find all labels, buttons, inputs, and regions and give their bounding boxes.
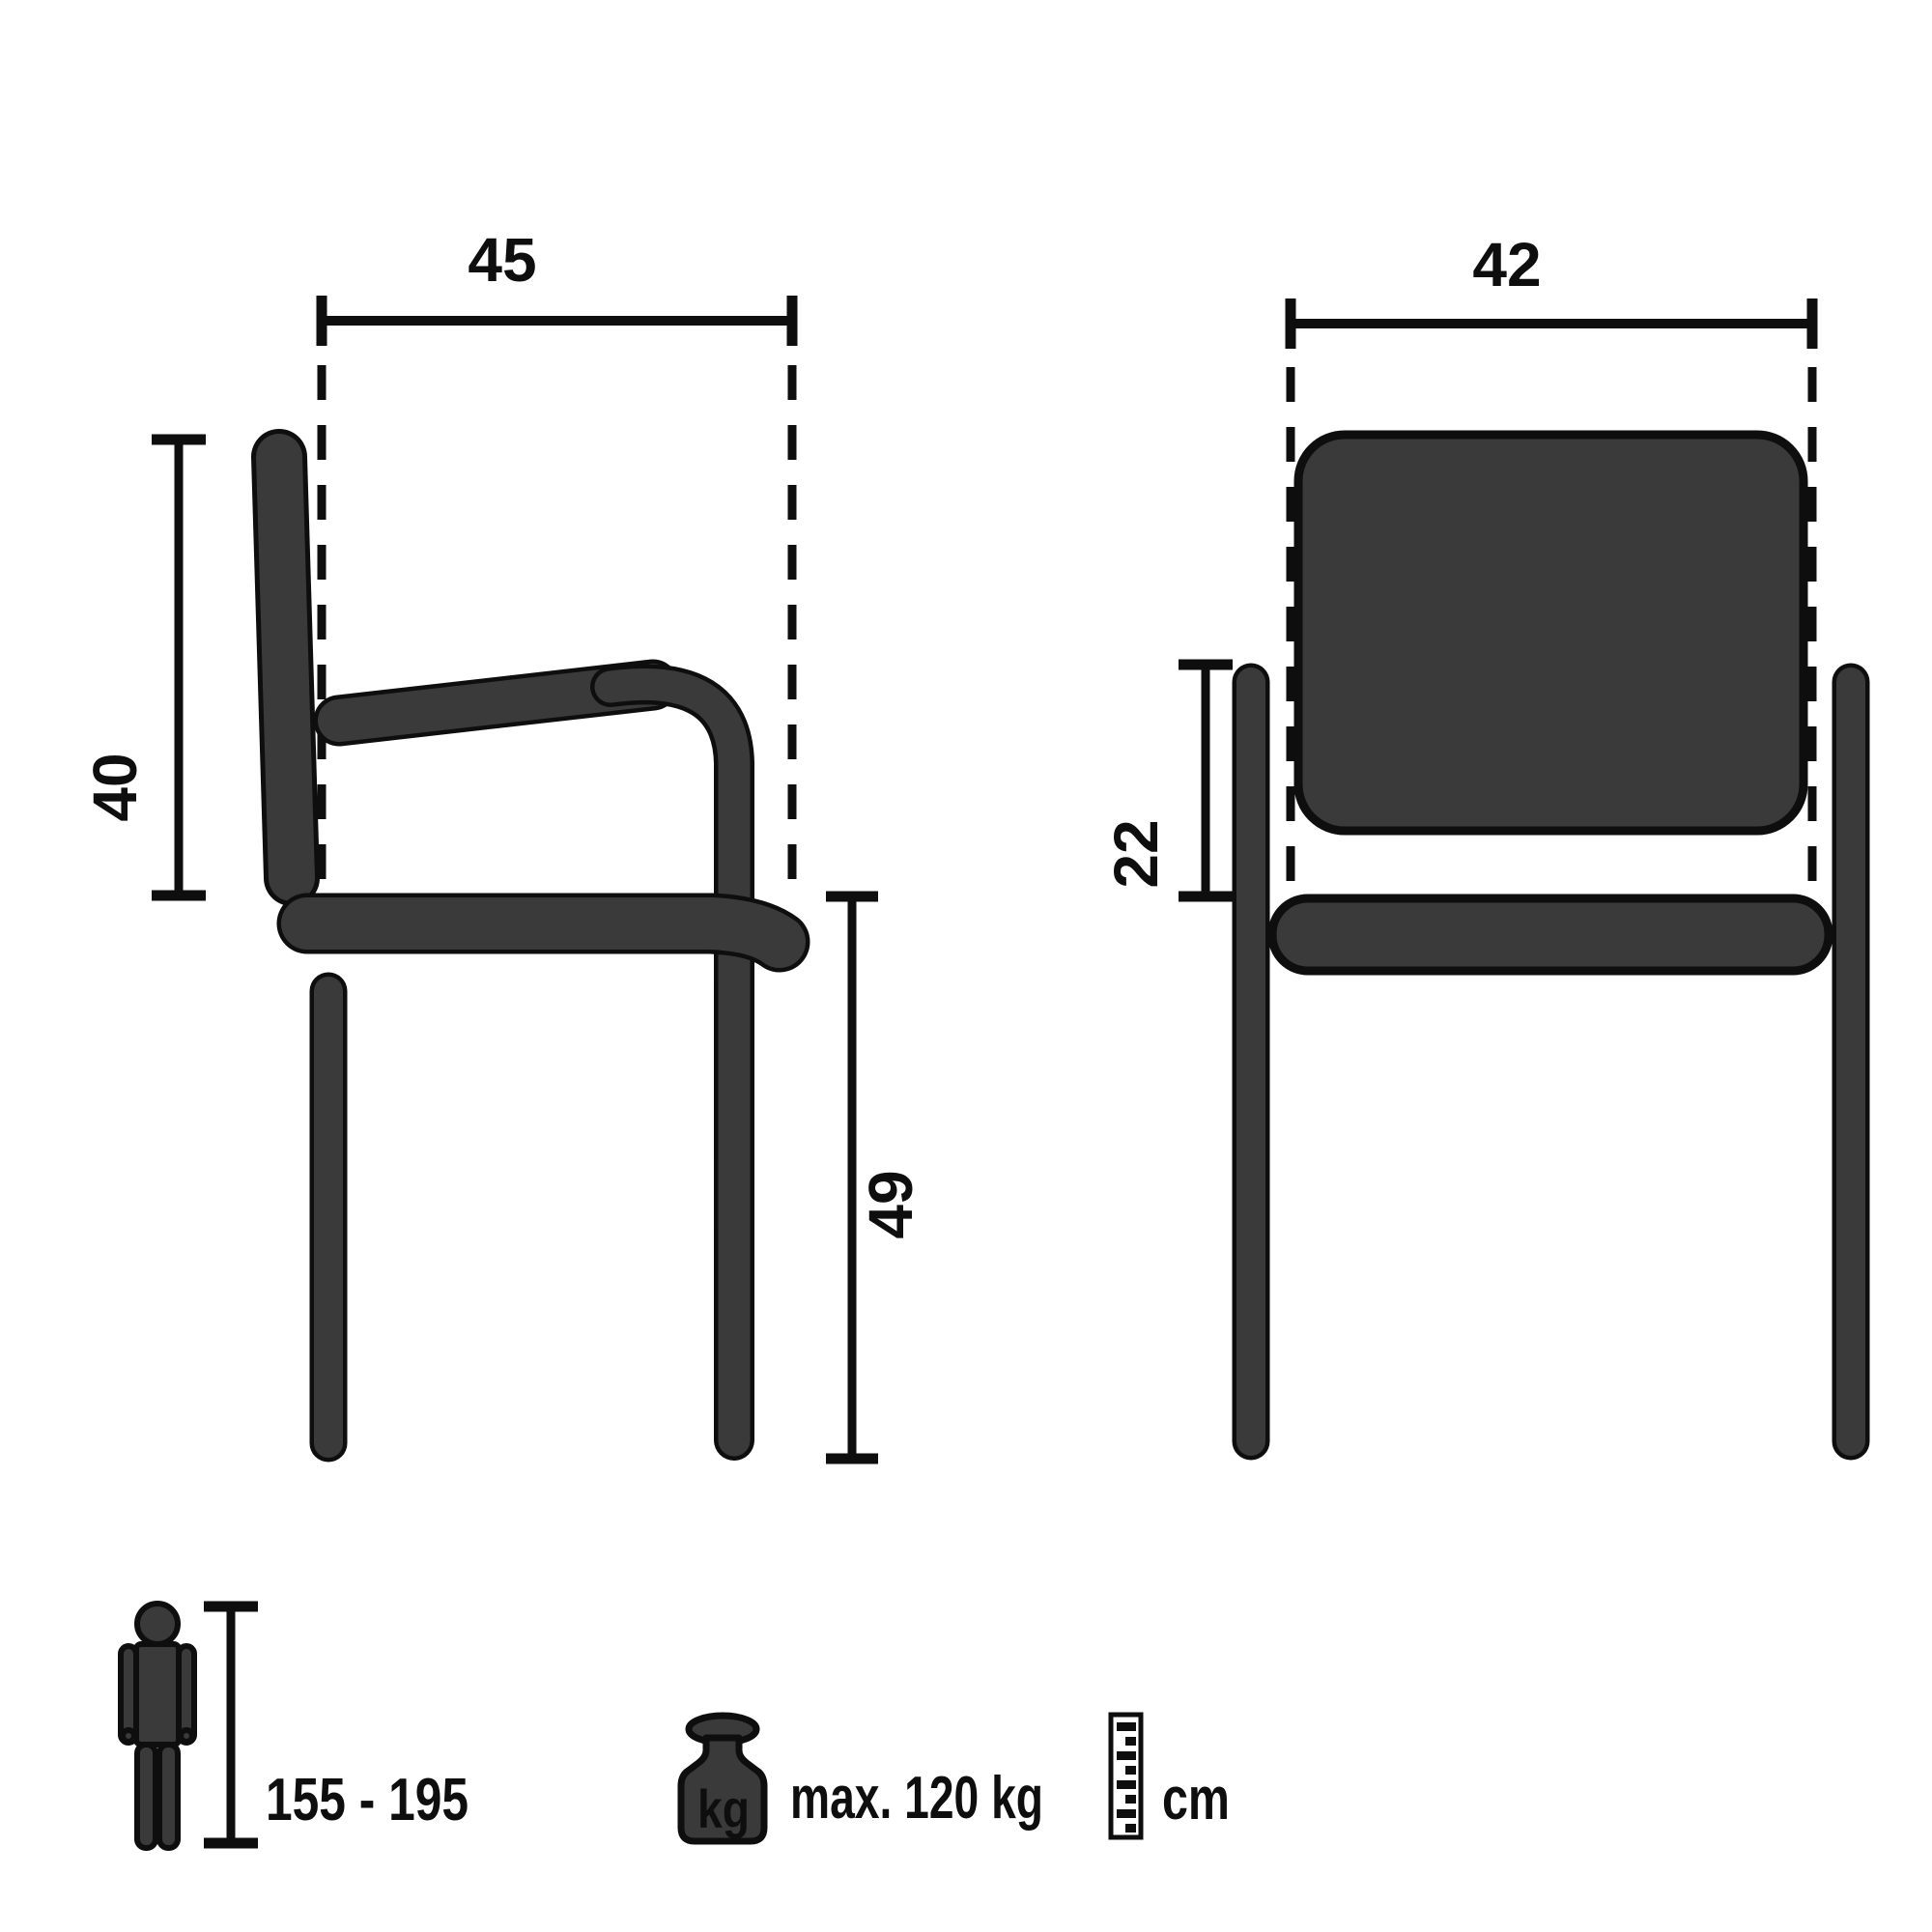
side-seat-pad xyxy=(307,923,780,942)
front-width-dimension: 42 xyxy=(1291,230,1812,349)
side-backrest-value: 40 xyxy=(80,753,150,821)
front-width-value: 42 xyxy=(1472,230,1541,299)
max-load-label: max. 120 kg xyxy=(790,1765,1043,1832)
chair-dimension-diagram: 45 40 xyxy=(0,0,1932,1932)
weight-icon-label: kg xyxy=(697,1778,750,1839)
side-depth-dimension: 45 xyxy=(322,225,792,346)
side-backrest-pad xyxy=(279,457,292,878)
front-backrest-value: 22 xyxy=(1101,819,1171,888)
side-frame-tube xyxy=(611,684,734,1440)
front-view-chair: 42 22 xyxy=(1101,230,1851,1441)
diagram-canvas: 45 40 xyxy=(0,0,1932,1932)
side-backrest-dimension: 40 xyxy=(80,440,206,895)
side-seat-height-dimension: 49 xyxy=(826,896,925,1459)
ruler-icon xyxy=(1111,1715,1141,1837)
measure-unit-label: cm xyxy=(1162,1766,1230,1833)
side-depth-value: 45 xyxy=(468,225,536,295)
front-backrest-pad xyxy=(1298,435,1804,831)
side-view-chair: 45 40 xyxy=(80,225,925,1459)
legend: 155 - 195 kg max. 120 kg cm xyxy=(121,1604,1230,1848)
person-height-dimension xyxy=(204,1606,258,1843)
weight-icon: kg xyxy=(681,1716,764,1841)
person-icon xyxy=(121,1604,194,1848)
user-height-range-label: 155 - 195 xyxy=(266,1767,469,1833)
front-backrest-dimension: 22 xyxy=(1101,665,1233,896)
front-seat-pad xyxy=(1272,898,1829,971)
side-seat-height-value: 49 xyxy=(856,1170,925,1238)
